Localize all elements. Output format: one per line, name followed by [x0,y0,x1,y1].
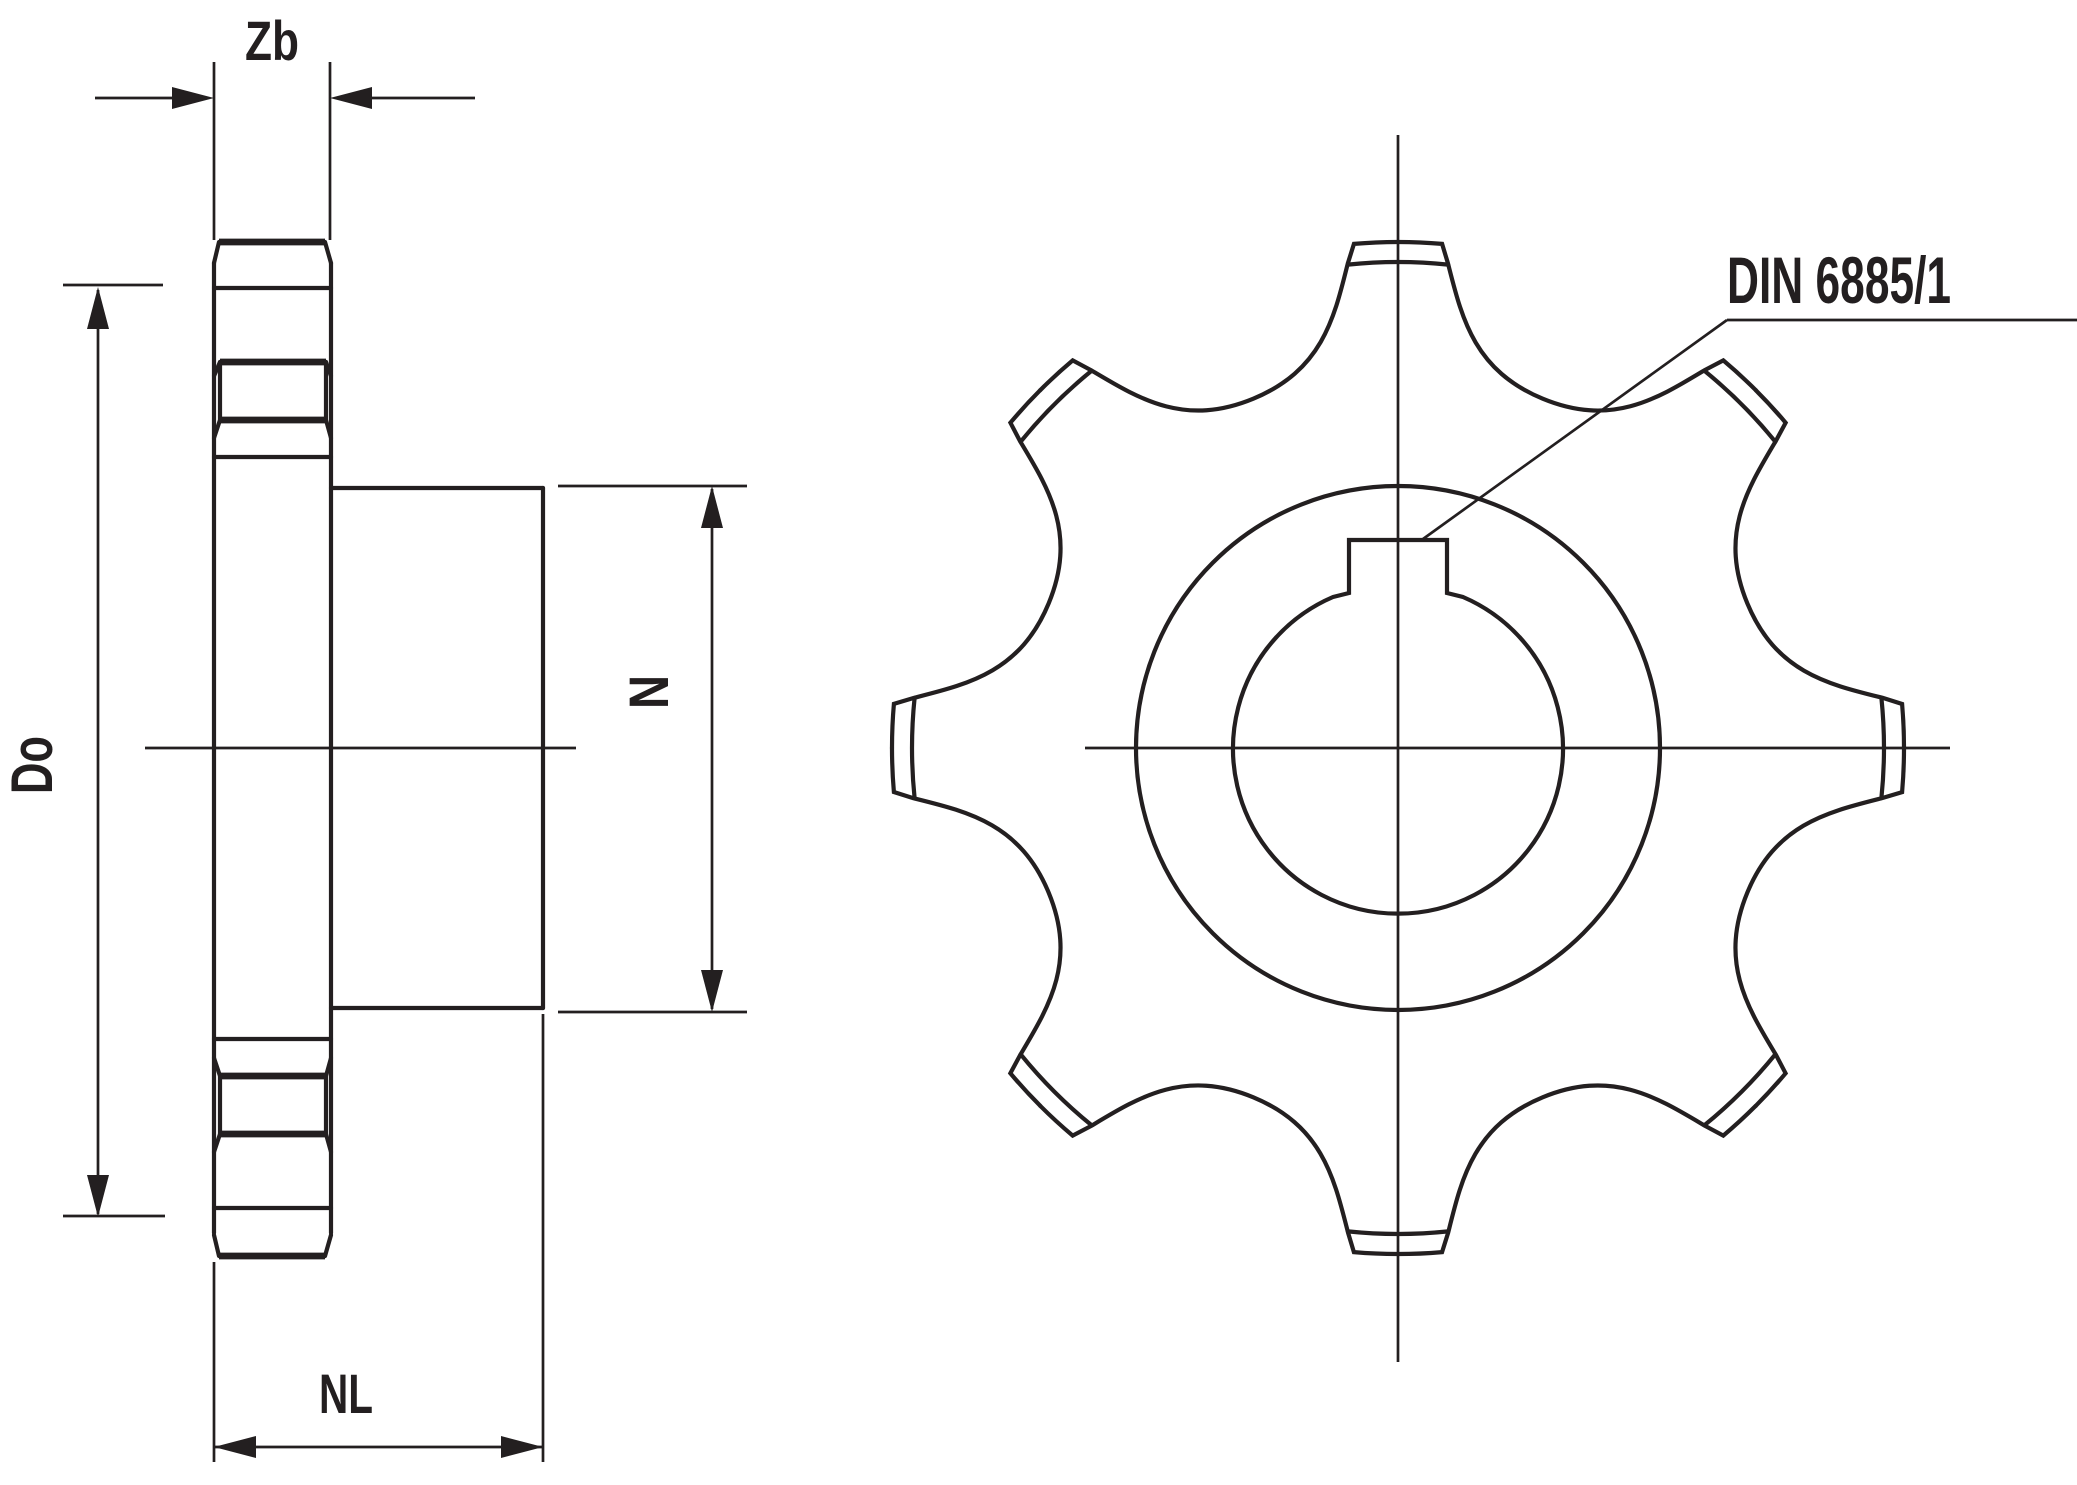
dimension-do: Do [0,285,165,1217]
n-label: N [617,675,680,709]
technical-drawing: Zb Do N NL [0,0,2077,1485]
nl-label: NL [319,1362,373,1425]
lower-tooth-band [214,1058,331,1152]
dimension-n: N [558,486,747,1012]
dimension-nl: NL [214,1014,543,1462]
drawing-page: Zb Do N NL [0,0,2077,1485]
keyway-standard-label: DIN 6885/1 [1727,243,1951,317]
front-view: DIN 6885/1 [787,135,2077,1362]
do-label: Do [0,736,65,794]
dimension-zb: Zb [95,9,475,240]
side-view: Zb Do N NL [0,9,747,1462]
zb-label: Zb [245,9,299,72]
keyway-callout: DIN 6885/1 [1423,243,2077,539]
upper-tooth-band [214,362,331,438]
